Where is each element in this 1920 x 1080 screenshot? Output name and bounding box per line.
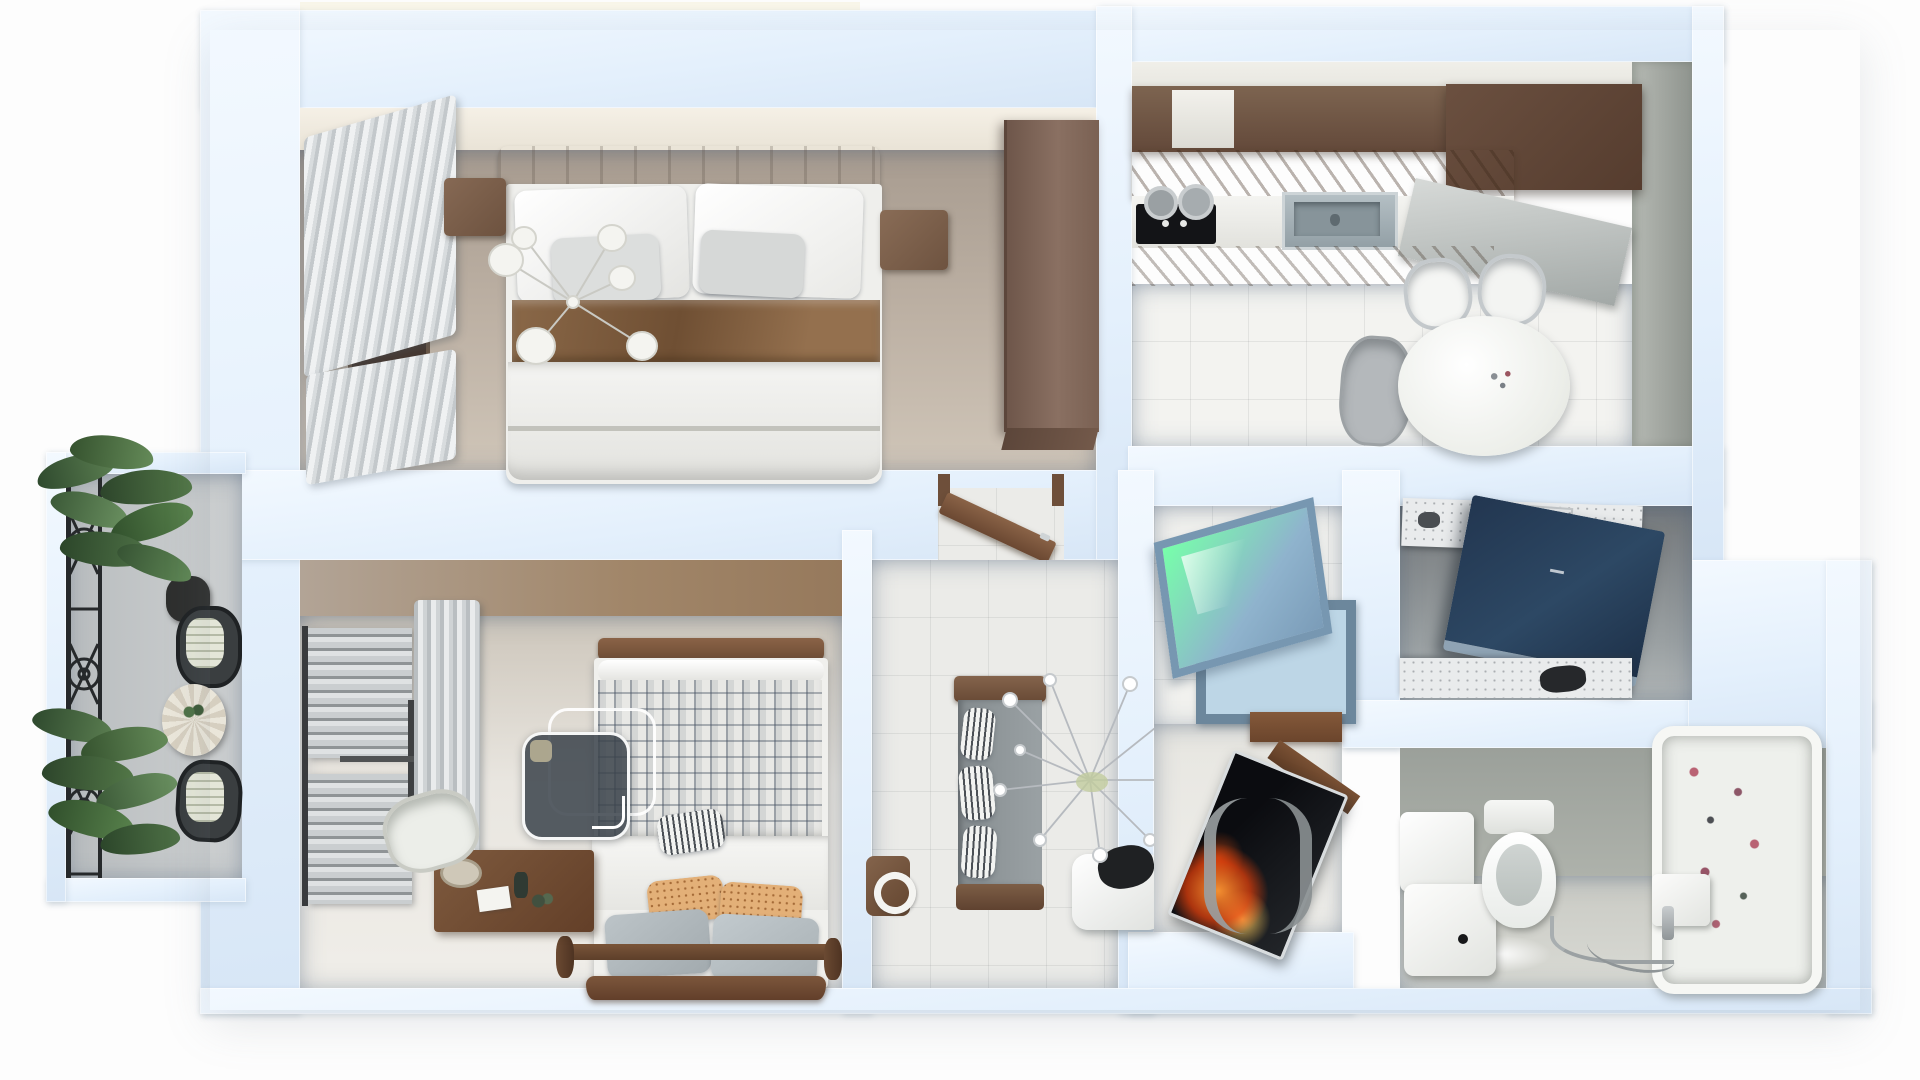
cooktop-knob-1: [1162, 220, 1169, 227]
bed-post-right: [824, 938, 842, 980]
wall-top-bedroom1: [200, 10, 1112, 108]
pot-icon-1: [1144, 186, 1178, 220]
wall-bedroom2-right: [842, 530, 872, 1014]
room-bathroom: [1400, 748, 1826, 988]
shelf-dark-item-1: [1418, 512, 1440, 528]
sink-drain-icon: [1330, 214, 1340, 226]
cooktop-knob-2: [1180, 220, 1187, 227]
wall-kitchen-bottom: [1128, 446, 1724, 506]
door-jamb-right: [1052, 474, 1064, 506]
wood-shelf: [1250, 712, 1342, 742]
room-laundry: [1400, 506, 1692, 700]
watermark-corner-white: [592, 796, 625, 829]
wardrobe: [1004, 120, 1099, 432]
wall-bottom: [200, 988, 1872, 1014]
desk-plant-icon: [528, 890, 554, 912]
upper-cabinet-notch: [1172, 90, 1234, 148]
towel-radiator: [308, 628, 412, 758]
watermark-corner-beige: [530, 740, 552, 762]
toilet-seat-inner: [1496, 844, 1542, 906]
faucet-head: [1662, 906, 1674, 940]
cube-dot: [1458, 934, 1468, 944]
toilet-tank: [1484, 800, 1554, 834]
desk-bottle: [514, 872, 528, 898]
bedroom2-wallface: [300, 560, 842, 618]
room-kitchen: [1132, 62, 1692, 446]
wall-bath-right: [1826, 560, 1872, 1014]
wall-balcony-bottom: [46, 878, 246, 902]
sofa-front-rail: [956, 884, 1044, 910]
laundry-low-shelf: [1400, 658, 1632, 698]
plant-cluster-top: [30, 436, 220, 586]
laundry-cube: [1404, 884, 1496, 976]
chair1-cushion: [186, 618, 224, 668]
cistern: [1400, 812, 1474, 892]
nightstand-right: [880, 210, 948, 270]
crystal-branch-icon: [980, 660, 1180, 870]
plant-cluster-bottom: [28, 700, 218, 870]
leaf: [99, 467, 193, 507]
bed1-pillow-small-right: [698, 229, 805, 298]
wardrobe-base: [1001, 428, 1098, 450]
wall-right-upper: [1692, 6, 1724, 566]
desk-papers: [477, 886, 512, 912]
bed2-foot-rail: [566, 944, 838, 960]
bed1-duvet-fold: [508, 426, 880, 431]
bed-post-left: [556, 936, 574, 978]
curved-side-table: [1204, 798, 1312, 934]
window-frame-dark-h: [340, 756, 420, 762]
floorplan-render: [0, 0, 1920, 1080]
bed2-head-rail: [598, 638, 824, 660]
wall-top-kitchen: [1100, 6, 1724, 62]
leaf: [114, 536, 197, 589]
room-utility: [1154, 506, 1342, 932]
table-floral-decal-icon: [1484, 366, 1518, 392]
room-master-bedroom: [300, 108, 1096, 470]
chandelier-icon: [468, 222, 678, 382]
bedroom1-curtain-upper: [304, 94, 456, 378]
bed1-headboard: [498, 146, 880, 188]
foot-bench: [586, 976, 826, 1000]
pot-icon-2: [1178, 184, 1214, 220]
bed2-bolster: [598, 660, 824, 682]
